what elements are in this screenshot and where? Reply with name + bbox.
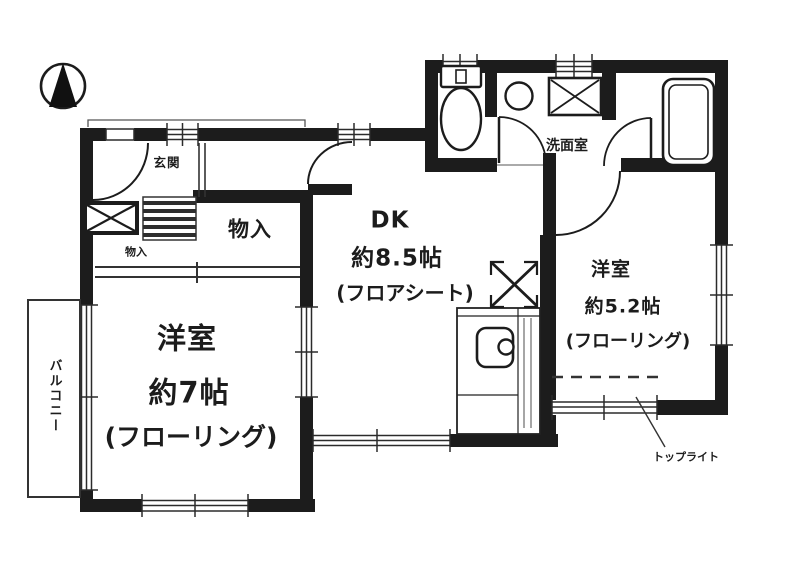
washroom-label: 洗面室 [546, 139, 588, 153]
storage-label: 物入 [228, 220, 272, 241]
window-washroom-top [556, 54, 592, 79]
window-room52-bottom [552, 395, 657, 420]
room52-name-label: 洋室 [591, 261, 631, 280]
dk-name-label: DK [371, 210, 410, 233]
room52-floor-label: (フローリング) [566, 333, 690, 351]
dk-floor-label: (フロアシート) [336, 283, 473, 303]
hall-storage-label: 物入 [125, 247, 147, 258]
entrance-label: 玄関 [153, 157, 180, 170]
washing-machine-icon [549, 78, 601, 115]
window-room52-right [710, 245, 733, 345]
dk-size-label: 約8.5帖 [351, 248, 443, 271]
room7-size-label: 約7帖 [148, 379, 229, 408]
entrance-step [143, 197, 196, 240]
dk-door-leaf [308, 184, 352, 195]
refrigerator-space-icon [491, 262, 537, 307]
toilet-door-arc [499, 117, 546, 164]
toilet-icon [441, 66, 481, 150]
meter-box-icon [85, 203, 137, 233]
dk-door-arc [308, 142, 352, 184]
room52-size-label: 約5.2帖 [585, 298, 662, 317]
window-top-a [167, 123, 198, 146]
bathtub-icon [663, 79, 714, 165]
eaves-line [88, 120, 305, 127]
window-room7-bottom [142, 494, 248, 517]
compass-north-icon [41, 63, 85, 108]
room7-name-label: 洋室 [157, 325, 217, 354]
entrance-door-panel [106, 129, 134, 140]
washbasin-icon [506, 83, 533, 110]
room52-door-arc [556, 171, 620, 235]
room52-door-leaf [543, 153, 556, 235]
sliding-door-room7-dk [295, 307, 318, 397]
room7-floor-label: (フローリング) [105, 425, 278, 450]
kitchen-sink-icon [477, 328, 514, 367]
floor-plan: 玄関 物入 物入 DK 約8.5帖 (フロアシート) 洗面室 洋室 約7帖 (フ… [0, 0, 800, 585]
balcony-label: バルコニー [48, 359, 61, 434]
skylight-label: トップライト [653, 452, 719, 463]
window-dk-bottom [313, 429, 450, 452]
entrance-door-arc [93, 143, 148, 200]
